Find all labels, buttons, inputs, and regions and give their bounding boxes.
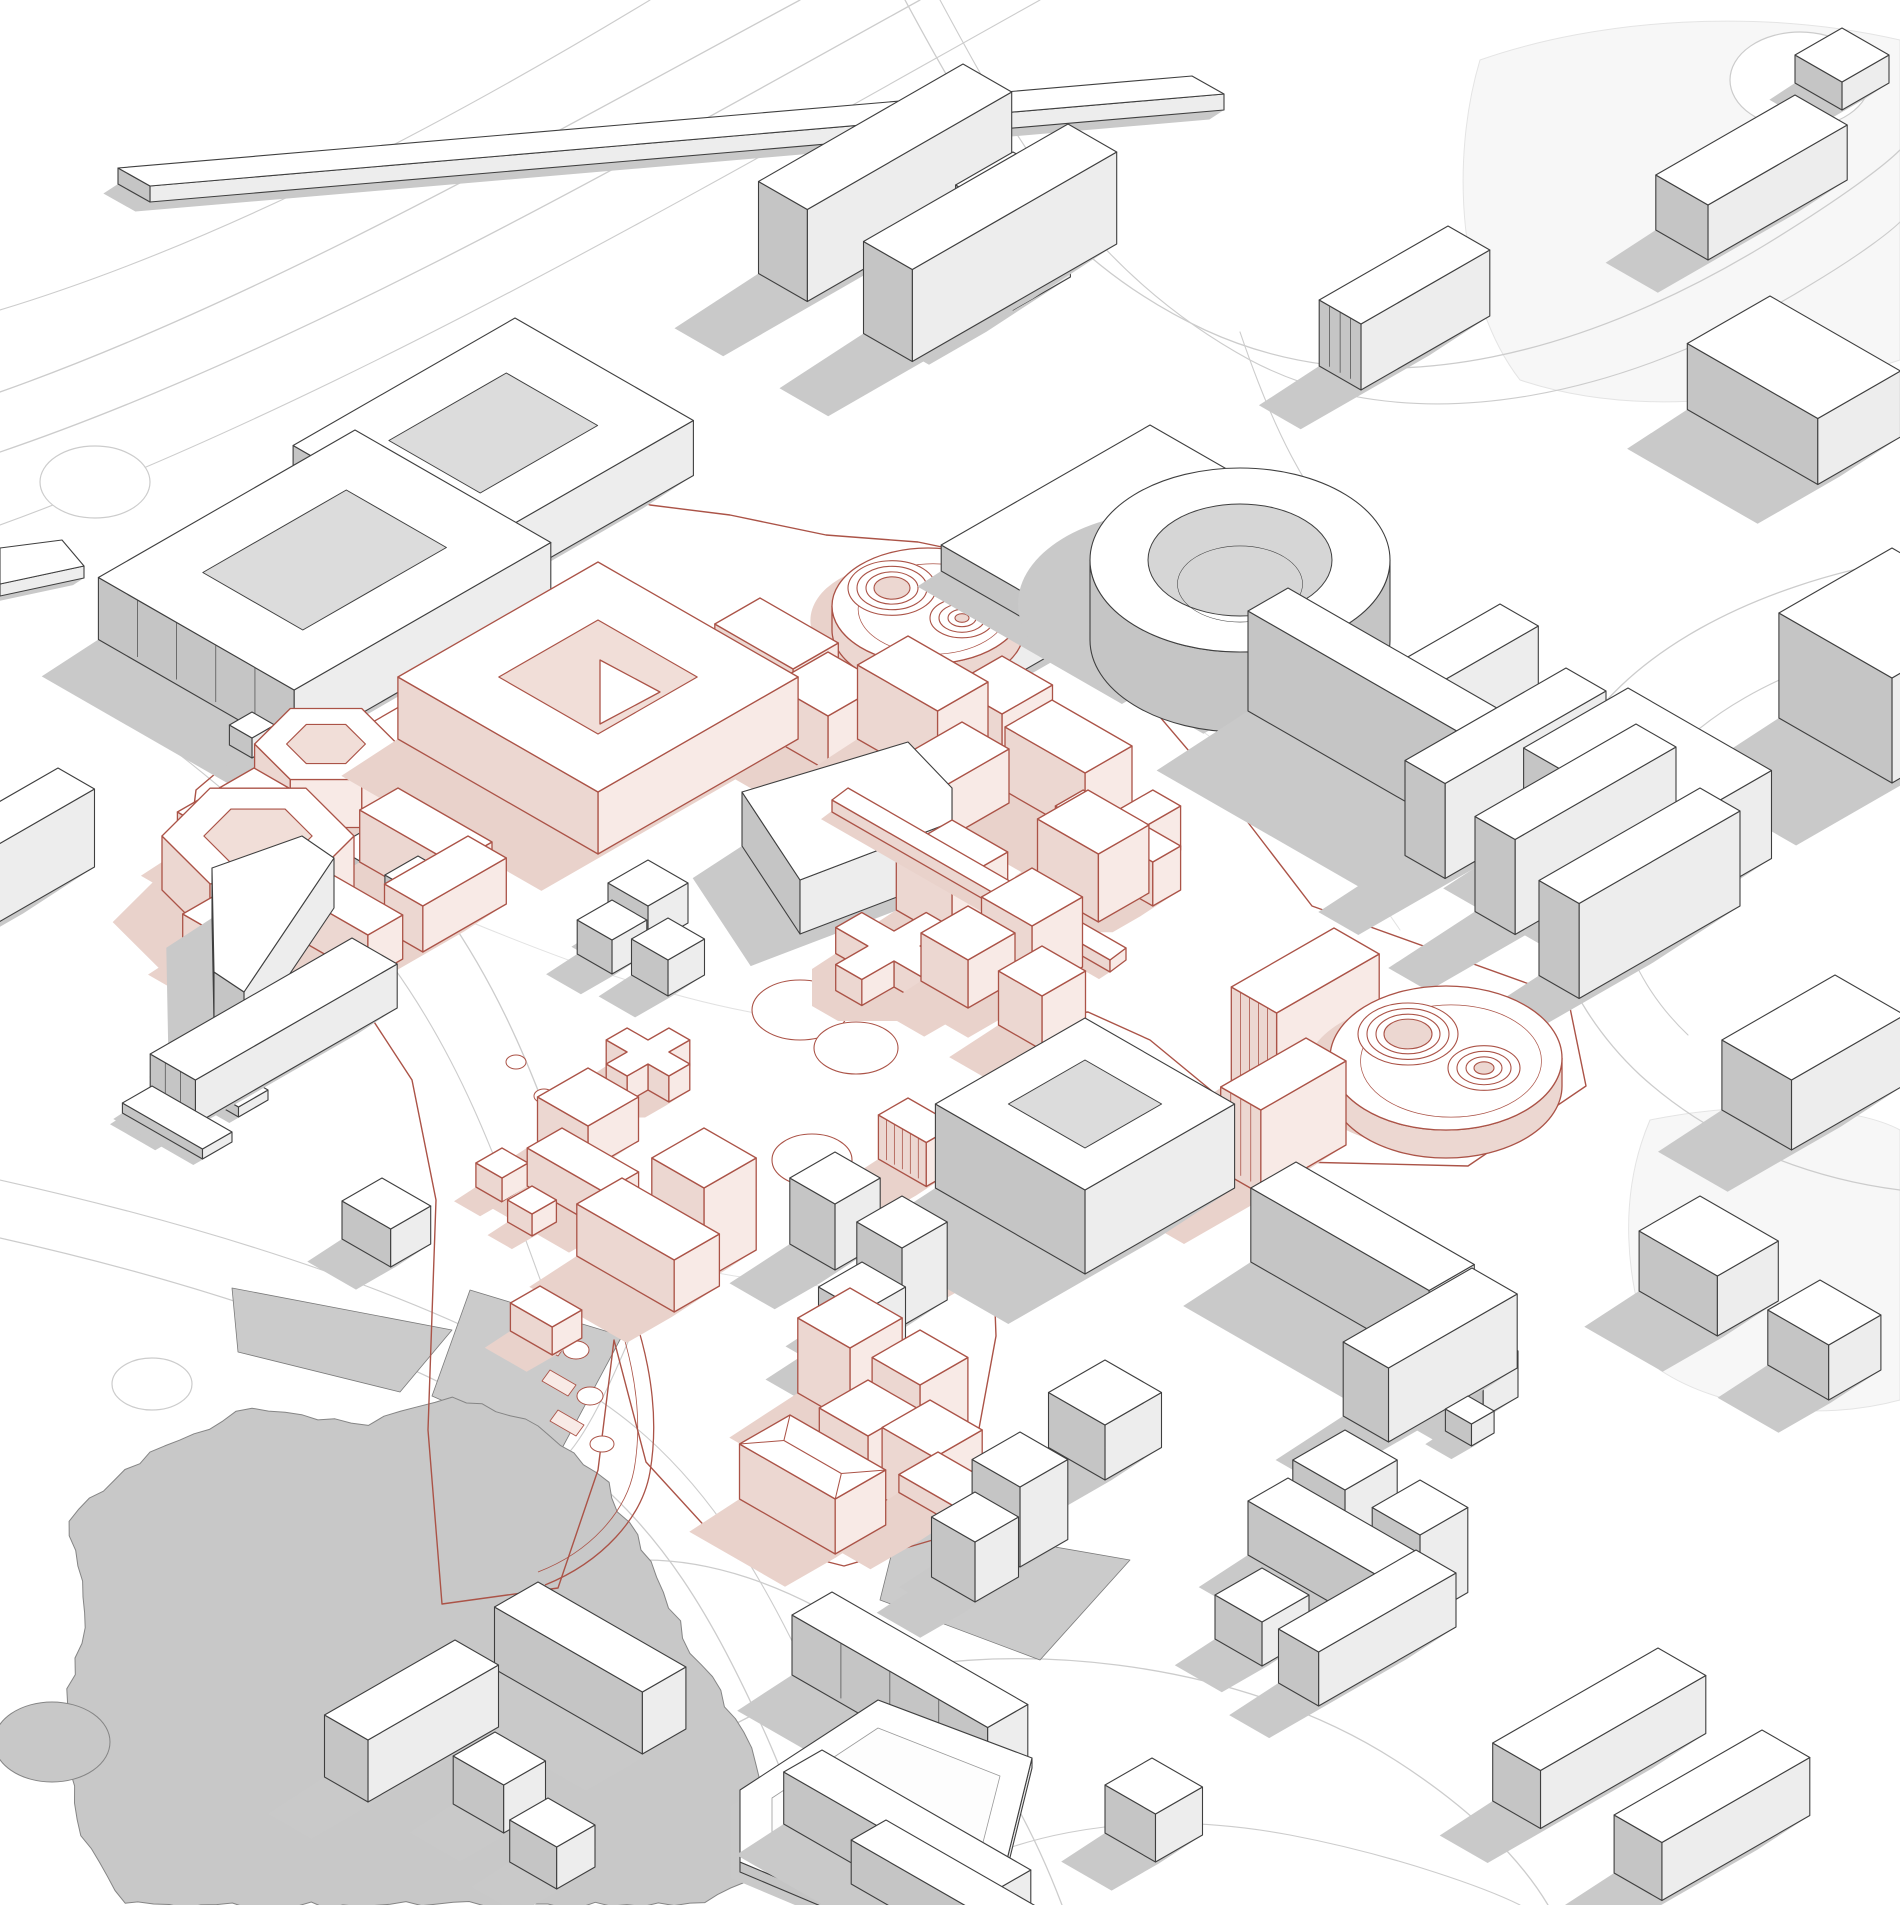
roundabout bbox=[112, 1358, 192, 1410]
garden-tree bbox=[590, 1436, 614, 1452]
axonometric-site-drawing bbox=[0, 0, 1900, 1905]
site-svg bbox=[0, 0, 1900, 1905]
garden-tree bbox=[506, 1055, 526, 1069]
spiral-core bbox=[1384, 1019, 1432, 1049]
ramp-deck bbox=[1330, 986, 1562, 1130]
pond bbox=[0, 1702, 110, 1782]
roundabout bbox=[40, 446, 150, 518]
spiral-core bbox=[1474, 1062, 1494, 1074]
spiral-core bbox=[955, 614, 969, 623]
spiral-core bbox=[874, 577, 910, 599]
garden-canopy bbox=[814, 1022, 898, 1074]
garden-tree bbox=[577, 1387, 603, 1405]
